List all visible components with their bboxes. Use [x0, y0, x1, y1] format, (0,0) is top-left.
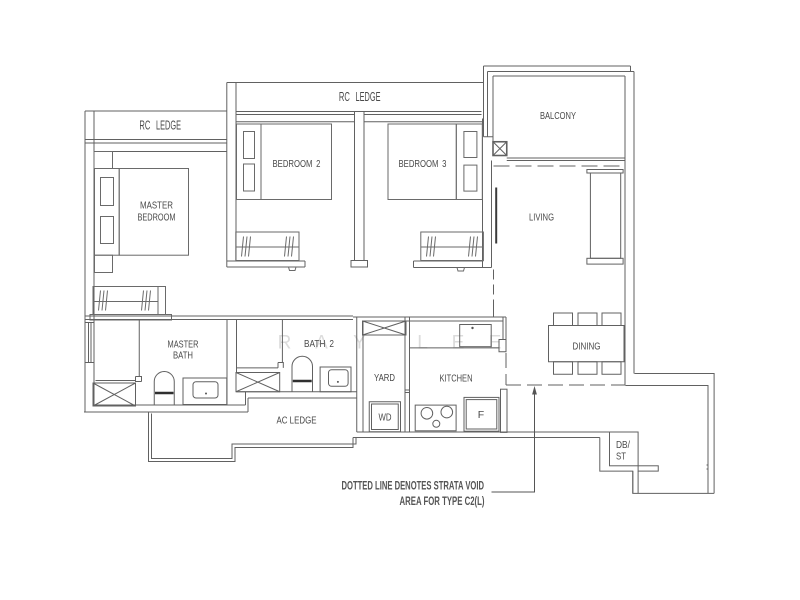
- svg-text:MASTER: MASTER: [140, 200, 173, 212]
- svg-text:BALCONY: BALCONY: [540, 110, 576, 122]
- svg-text:E: E: [452, 333, 465, 354]
- svg-text:DB/: DB/: [616, 439, 630, 451]
- svg-text:RC: RC: [139, 119, 150, 133]
- svg-text:WD: WD: [379, 412, 392, 424]
- svg-text:BEDROOM: BEDROOM: [138, 212, 176, 224]
- svg-text:F: F: [478, 409, 484, 421]
- svg-text:BATH 2: BATH 2: [304, 338, 334, 350]
- svg-text:L: L: [417, 333, 428, 354]
- svg-text:Y: Y: [353, 333, 366, 354]
- svg-text:BEDROOM 2: BEDROOM 2: [273, 158, 321, 170]
- svg-text:LEDGE: LEDGE: [356, 90, 381, 104]
- svg-text:LIVING: LIVING: [529, 212, 554, 224]
- svg-text:RC: RC: [339, 90, 350, 104]
- svg-text:DOTTED LINE DENOTES STRATA VOI: DOTTED LINE DENOTES STRATA VOID: [342, 479, 485, 493]
- svg-text:DINING: DINING: [573, 341, 601, 353]
- svg-text:BATH: BATH: [173, 350, 193, 362]
- svg-text:AREA FOR TYPE C2(L): AREA FOR TYPE C2(L): [400, 494, 485, 508]
- svg-text:R: R: [278, 333, 292, 354]
- svg-text:LEDGE: LEDGE: [156, 119, 181, 133]
- svg-text:YARD: YARD: [374, 372, 395, 384]
- svg-text:ST: ST: [616, 451, 626, 463]
- svg-text:BEDROOM 3: BEDROOM 3: [399, 158, 447, 170]
- svg-text:AC LEDGE: AC LEDGE: [277, 415, 317, 427]
- svg-text:KITCHEN: KITCHEN: [440, 373, 473, 385]
